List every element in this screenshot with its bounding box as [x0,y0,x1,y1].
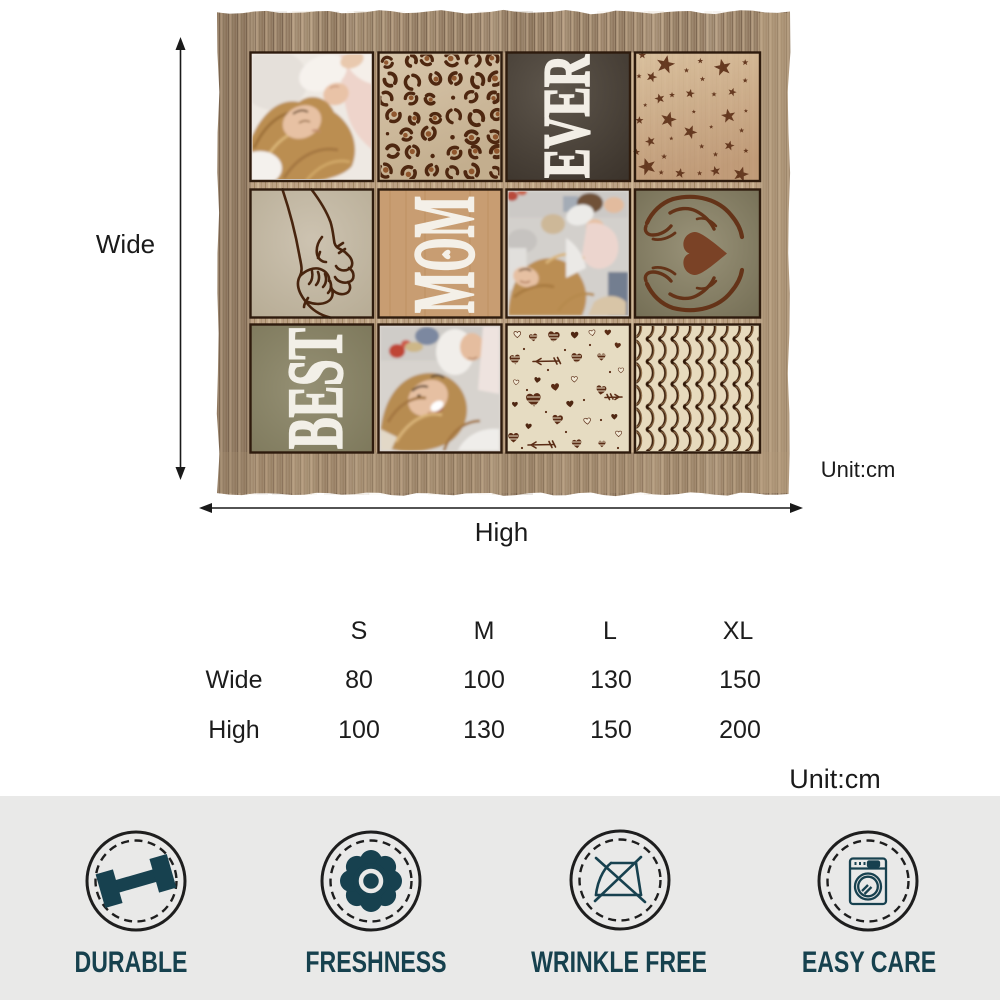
svg-text:Unit:cm: Unit:cm [821,457,896,482]
svg-text:Wide: Wide [96,229,155,259]
svg-text:High: High [475,517,528,547]
svg-text:EVER: EVER [531,54,604,178]
svg-text:BEST: BEST [272,328,359,449]
